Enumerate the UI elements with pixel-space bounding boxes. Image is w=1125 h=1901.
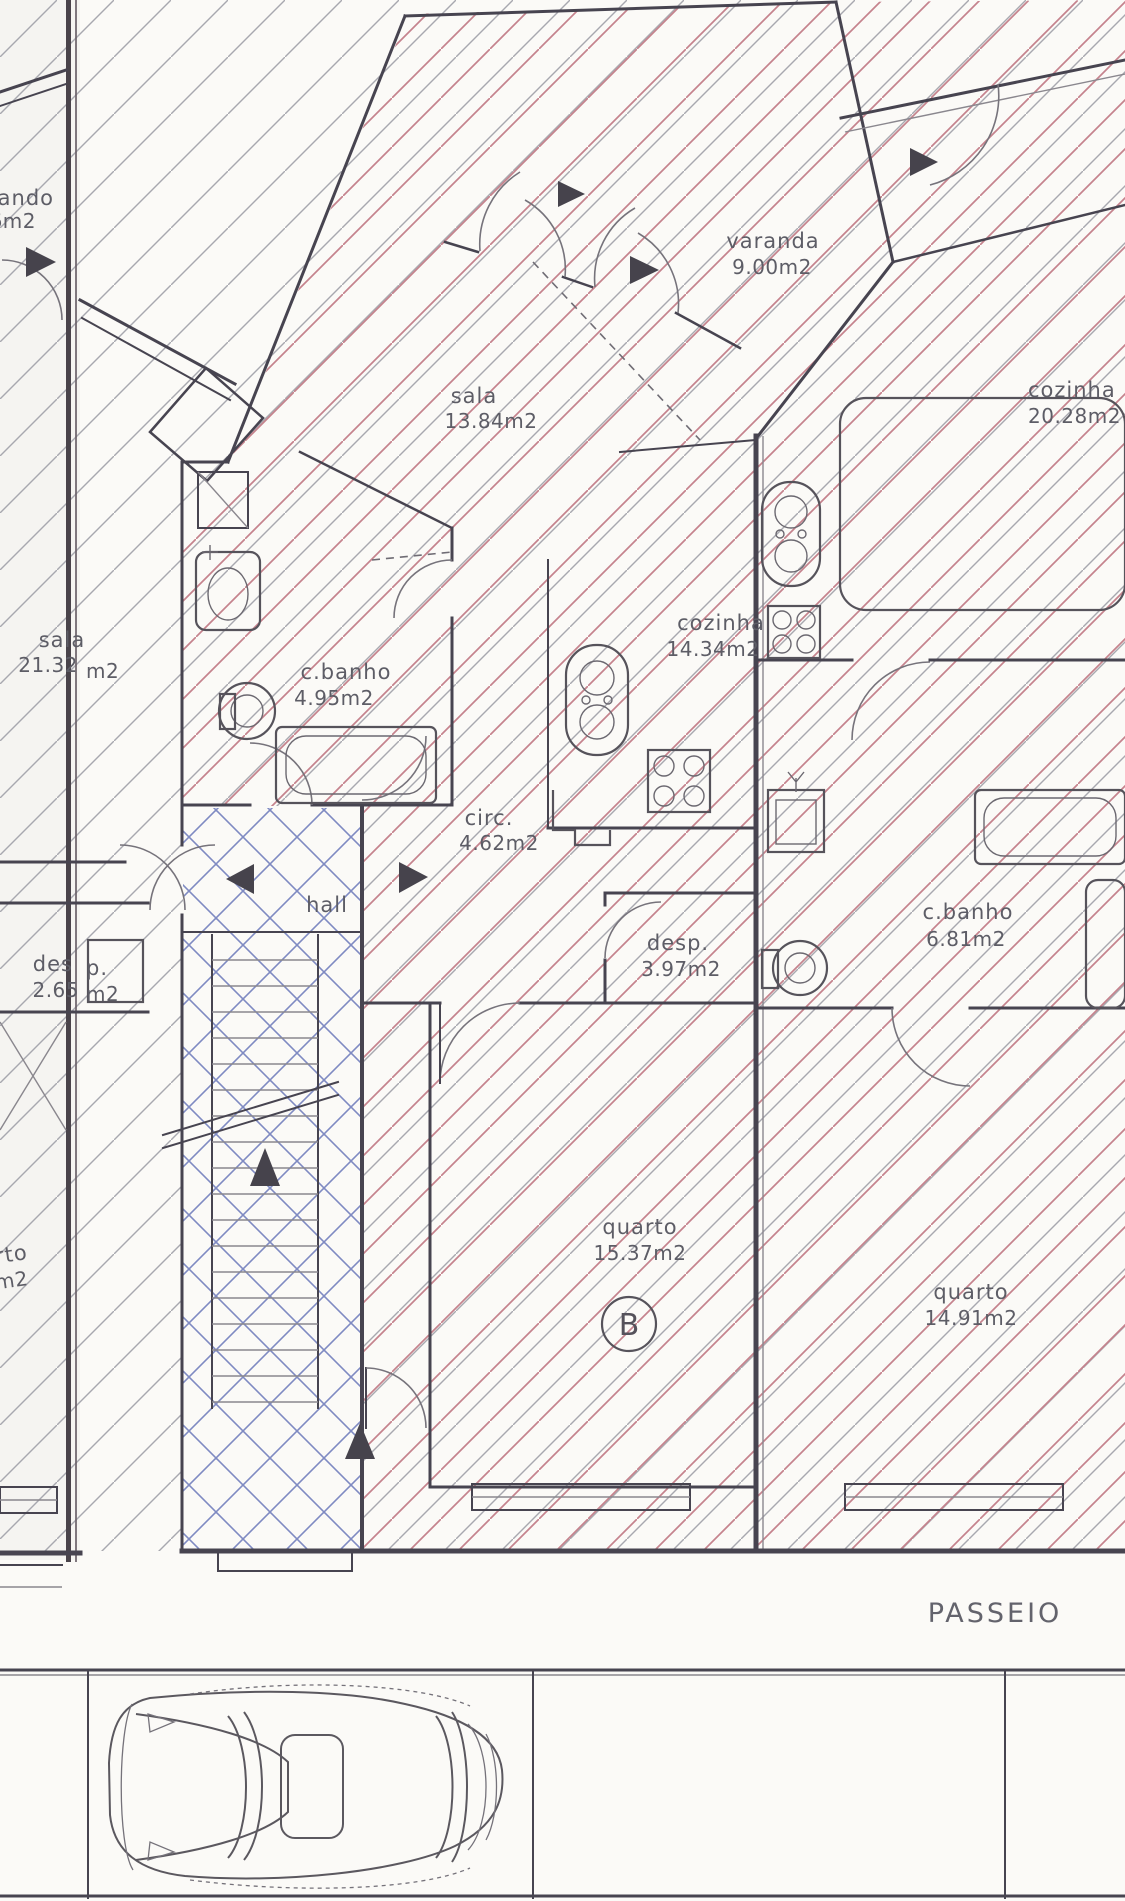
label-desp-a-right: p. <box>86 956 108 980</box>
area-cbanho-c: 6.81m2 <box>926 927 1006 951</box>
scanned-floor-plan: varanda 9.00m2 sala 13.84m2 cozinha 14.3… <box>0 0 1125 1901</box>
label-cbanho-b: c.banho <box>301 660 392 684</box>
sidewalk-label: PASSEIO <box>928 1598 1063 1629</box>
label-sala-a: sala <box>39 628 86 652</box>
label-sala-b: sala <box>451 384 498 408</box>
label-quarto-b: quarto <box>602 1215 677 1239</box>
area-sala-b: 13.84m2 <box>445 409 538 433</box>
area-sala-a-right: m2 <box>86 659 119 683</box>
area-quarto-c: 14.91m2 <box>925 1306 1018 1330</box>
label-desp-a-left: des <box>33 952 73 976</box>
area-cozinha-c: 20.28m2 <box>1028 404 1121 428</box>
area-varanda-a-fragment: 6m2 <box>0 209 36 233</box>
street: PASSEIO <box>0 1598 1125 1898</box>
unit-letter: B <box>619 1308 640 1343</box>
area-cbanho-b: 4.95m2 <box>294 686 374 710</box>
area-quarto-b: 15.37m2 <box>594 1241 687 1265</box>
area-sala-a-left: 21.32 <box>18 653 78 677</box>
area-cozinha-b: 14.34m2 <box>667 637 760 661</box>
label-cozinha-b: cozinha <box>677 611 765 635</box>
label-varanda-a-fragment: ando <box>0 186 54 210</box>
area-desp-a-right: m2 <box>86 982 119 1006</box>
area-quarto-a-fragment: m2 <box>0 1266 30 1294</box>
car <box>109 1685 502 1888</box>
label-desp-b: desp. <box>647 931 709 955</box>
label-cbanho-c: c.banho <box>923 900 1014 924</box>
area-varanda: 9.00m2 <box>732 255 812 279</box>
label-varanda: varanda <box>726 229 819 253</box>
label-hall: hall <box>306 893 348 917</box>
label-quarto-a-fragment: rto <box>0 1240 29 1268</box>
car-hood-lines <box>136 1714 288 1860</box>
floor-plan-svg: varanda 9.00m2 sala 13.84m2 cozinha 14.3… <box>0 0 1125 1901</box>
area-desp-b: 3.97m2 <box>641 957 721 981</box>
label-quarto-c: quarto <box>933 1280 1008 1304</box>
label-cozinha-c: cozinha <box>1028 378 1116 402</box>
area-circ: 4.62m2 <box>459 831 539 855</box>
label-circ: circ. <box>465 806 514 830</box>
car-roof <box>281 1735 343 1838</box>
area-desp-a-left: 2.65 <box>32 978 79 1002</box>
